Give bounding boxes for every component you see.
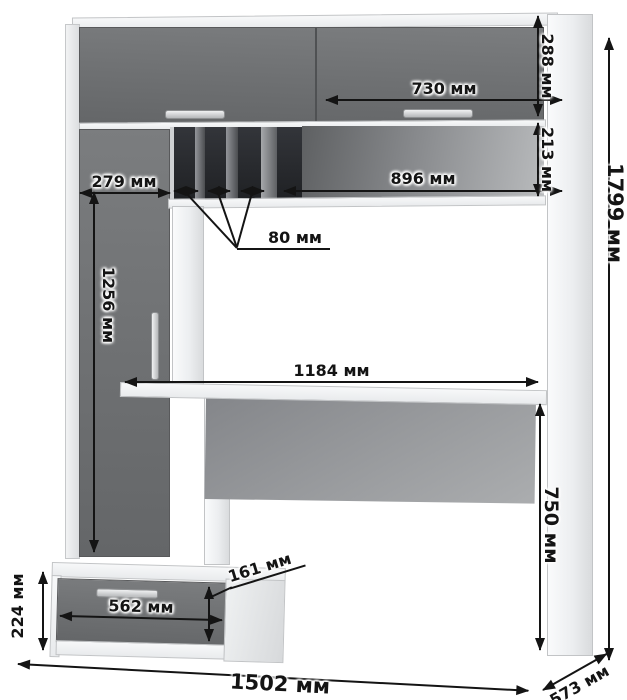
dim-label-desktop-width: 1184 мм xyxy=(125,361,538,380)
furniture-dimension-diagram: 730 мм 288 мм 213 мм 896 мм 279 мм 80 мм… xyxy=(0,0,627,700)
dim-line-total-height xyxy=(608,38,610,660)
dim-underline-cd-slot xyxy=(237,248,330,250)
dim-label-top-door-width: 730 мм xyxy=(326,79,562,98)
top-left-door-handle xyxy=(165,110,225,119)
dim-label-top-door-height: 288 мм xyxy=(538,16,557,116)
open-niche-interior xyxy=(302,126,544,200)
dim-line-niche-width xyxy=(284,190,562,192)
dim-line-cd-slot-2 xyxy=(208,190,230,192)
modesty-panel xyxy=(205,398,536,504)
dim-label-tall-door-height: 1256 мм xyxy=(99,245,118,365)
top-cupboard-doors xyxy=(79,27,544,125)
door-seam xyxy=(315,28,317,124)
dim-line-tall-door-height xyxy=(93,192,95,552)
dim-label-total-height: 1799 мм xyxy=(603,158,627,268)
dim-line-top-door-width xyxy=(326,99,562,101)
dim-label-pedestal-height: 224 мм xyxy=(8,560,27,652)
dim-label-cd-slot-width: 80 мм xyxy=(268,228,322,247)
top-right-door-handle xyxy=(403,109,473,118)
pedestal-bottom-rail xyxy=(56,640,226,659)
dim-line-desktop-width xyxy=(125,381,538,383)
dim-label-left-column-width: 279 мм xyxy=(74,172,174,191)
dim-line-pedestal-height xyxy=(42,572,44,650)
dim-line-cd-slot-3 xyxy=(241,190,264,192)
dim-label-total-width: 1502 мм xyxy=(155,665,406,700)
dim-label-niche-width: 896 мм xyxy=(284,169,562,188)
pedestal-right-side xyxy=(223,579,285,664)
center-upright-upper xyxy=(172,206,204,387)
dim-label-desktop-height: 750 мм xyxy=(540,445,562,605)
niche-bottom-shelf xyxy=(168,195,546,208)
left-side-panel xyxy=(65,24,80,559)
